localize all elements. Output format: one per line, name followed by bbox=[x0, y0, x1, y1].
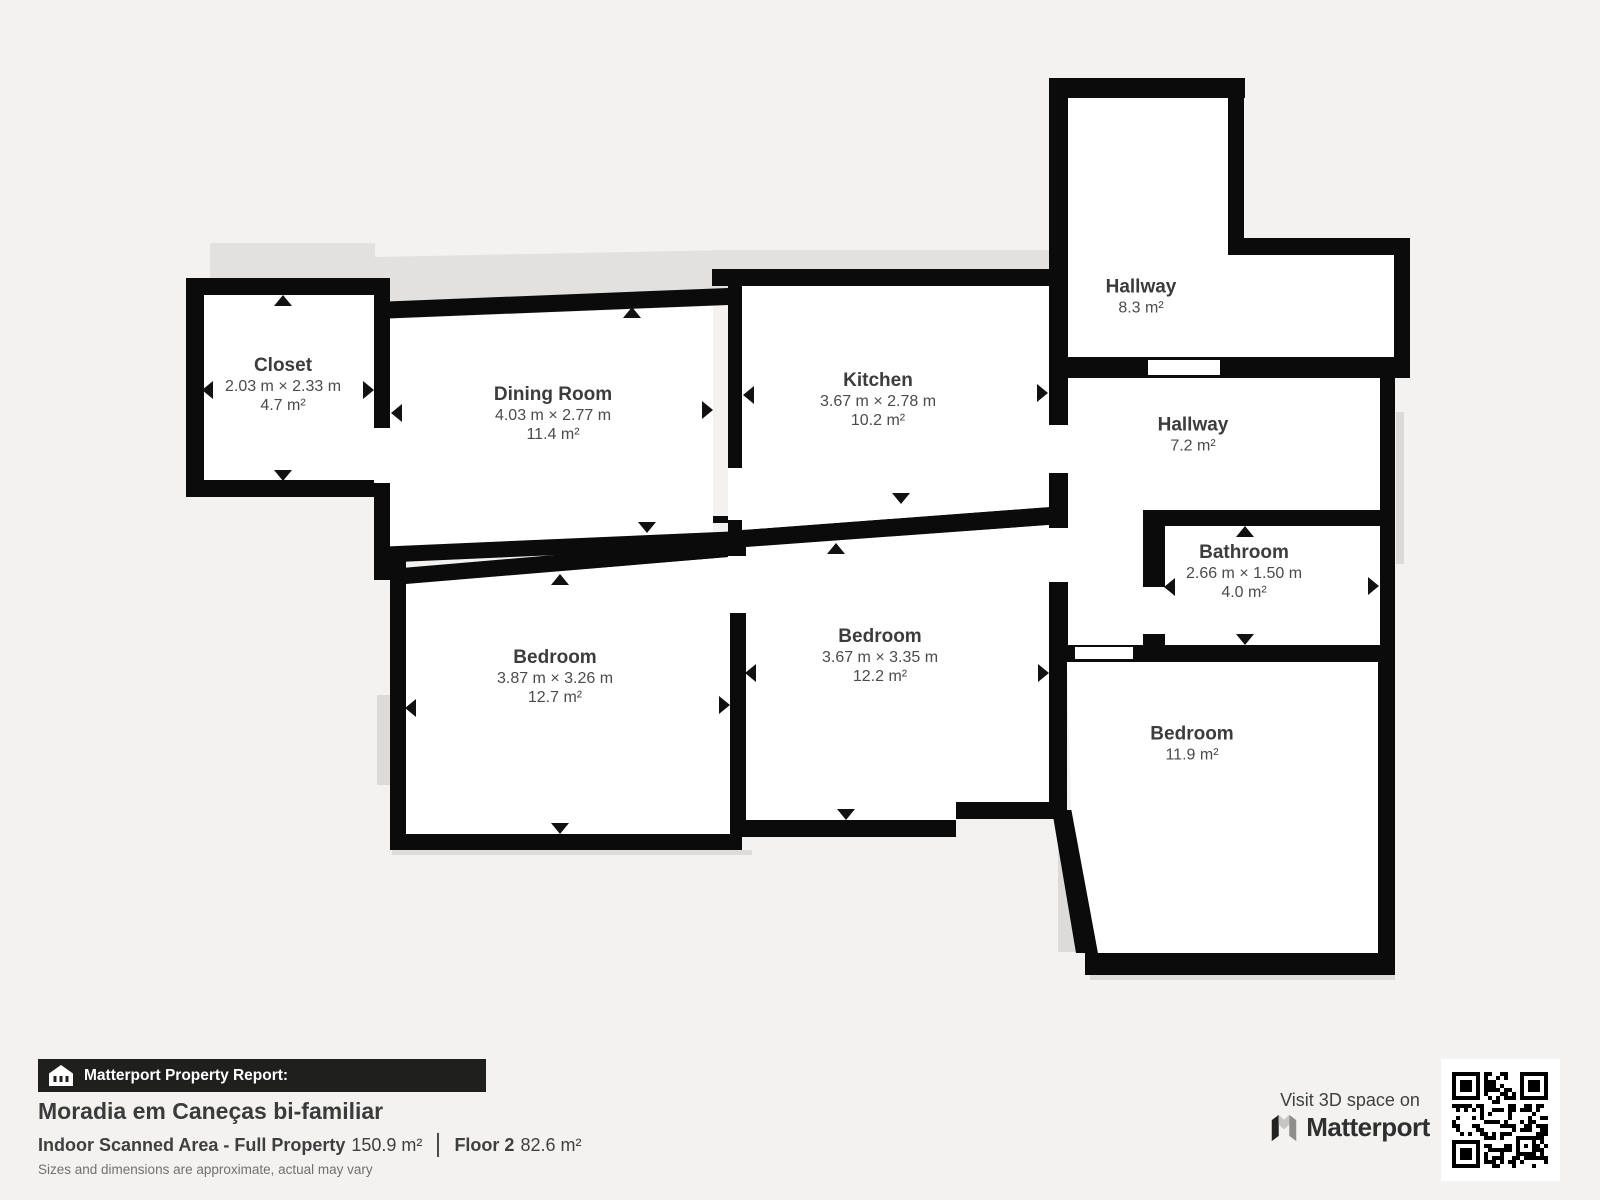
room-label-kitchen: Kitchen 3.67 m × 2.78 m 10.2 m² bbox=[820, 370, 936, 430]
property-title: Moradia em Caneças bi-familiar bbox=[38, 1098, 383, 1125]
scanned-area-value: 150.9 m² bbox=[351, 1135, 422, 1156]
matterport-logo-icon bbox=[1270, 1114, 1298, 1142]
floor-value: 82.6 m² bbox=[520, 1135, 581, 1156]
scanned-area-label: Indoor Scanned Area - Full Property bbox=[38, 1135, 345, 1156]
matterport-wordmark: Matterport bbox=[1306, 1112, 1430, 1143]
room-area: 12.2 m² bbox=[822, 667, 938, 686]
room-dimensions: 3.67 m × 3.35 m bbox=[822, 648, 938, 667]
house-icon bbox=[49, 1065, 73, 1086]
report-banner: Matterport Property Report: bbox=[38, 1059, 486, 1092]
room-label-bedroom-1: Bedroom 3.87 m × 3.26 m 12.7 m² bbox=[497, 647, 613, 707]
room-area: 10.2 m² bbox=[820, 411, 936, 430]
room-label-hallway-1: Hallway 8.3 m² bbox=[1106, 277, 1177, 318]
room-dimensions: 2.03 m × 2.33 m bbox=[225, 377, 341, 396]
room-label-hallway-2: Hallway 7.2 m² bbox=[1158, 415, 1229, 456]
room-label-bedroom-3: Bedroom 11.9 m² bbox=[1150, 724, 1233, 765]
qr-code bbox=[1441, 1059, 1560, 1181]
qr-code-pattern bbox=[1452, 1072, 1548, 1168]
room-name: Bathroom bbox=[1186, 542, 1302, 564]
scanned-area-line: Indoor Scanned Area - Full Property 150.… bbox=[38, 1133, 581, 1157]
room-area: 8.3 m² bbox=[1106, 299, 1177, 318]
room-name: Hallway bbox=[1158, 415, 1229, 437]
room-label-bathroom: Bathroom 2.66 m × 1.50 m 4.0 m² bbox=[1186, 542, 1302, 602]
room-name: Dining Room bbox=[494, 384, 612, 406]
floorplan-page: Closet 2.03 m × 2.33 m 4.7 m² Dining Roo… bbox=[0, 0, 1600, 1200]
room-label-dining-room: Dining Room 4.03 m × 2.77 m 11.4 m² bbox=[494, 384, 612, 444]
room-name: Bedroom bbox=[497, 647, 613, 669]
room-name: Bedroom bbox=[1150, 724, 1233, 746]
divider bbox=[437, 1133, 439, 1157]
room-area: 11.4 m² bbox=[494, 425, 612, 444]
room-area: 12.7 m² bbox=[497, 688, 613, 707]
room-area: 4.7 m² bbox=[225, 396, 341, 415]
floor-label: Floor 2 bbox=[454, 1135, 514, 1156]
room-area: 11.9 m² bbox=[1150, 746, 1233, 765]
room-dimensions: 4.03 m × 2.77 m bbox=[494, 406, 612, 425]
room-name: Hallway bbox=[1106, 277, 1177, 299]
report-banner-label: Matterport Property Report: bbox=[84, 1067, 288, 1085]
room-label-bedroom-2: Bedroom 3.67 m × 3.35 m 12.2 m² bbox=[822, 626, 938, 686]
visit-3d-text: Visit 3D space on bbox=[1240, 1090, 1460, 1111]
room-name: Bedroom bbox=[822, 626, 938, 648]
room-dimensions: 3.67 m × 2.78 m bbox=[820, 392, 936, 411]
room-area: 7.2 m² bbox=[1158, 437, 1229, 456]
room-label-closet: Closet 2.03 m × 2.33 m 4.7 m² bbox=[225, 355, 341, 415]
room-bedroom-3 bbox=[1067, 662, 1378, 953]
room-dimensions: 2.66 m × 1.50 m bbox=[1186, 564, 1302, 583]
room-name: Closet bbox=[225, 355, 341, 377]
matterport-brand: Matterport bbox=[1240, 1112, 1460, 1143]
floorplan-svg bbox=[0, 0, 1600, 1030]
room-area: 4.0 m² bbox=[1186, 583, 1302, 602]
room-name: Kitchen bbox=[820, 370, 936, 392]
room-dimensions: 3.87 m × 3.26 m bbox=[497, 669, 613, 688]
disclaimer-text: Sizes and dimensions are approximate, ac… bbox=[38, 1162, 373, 1177]
